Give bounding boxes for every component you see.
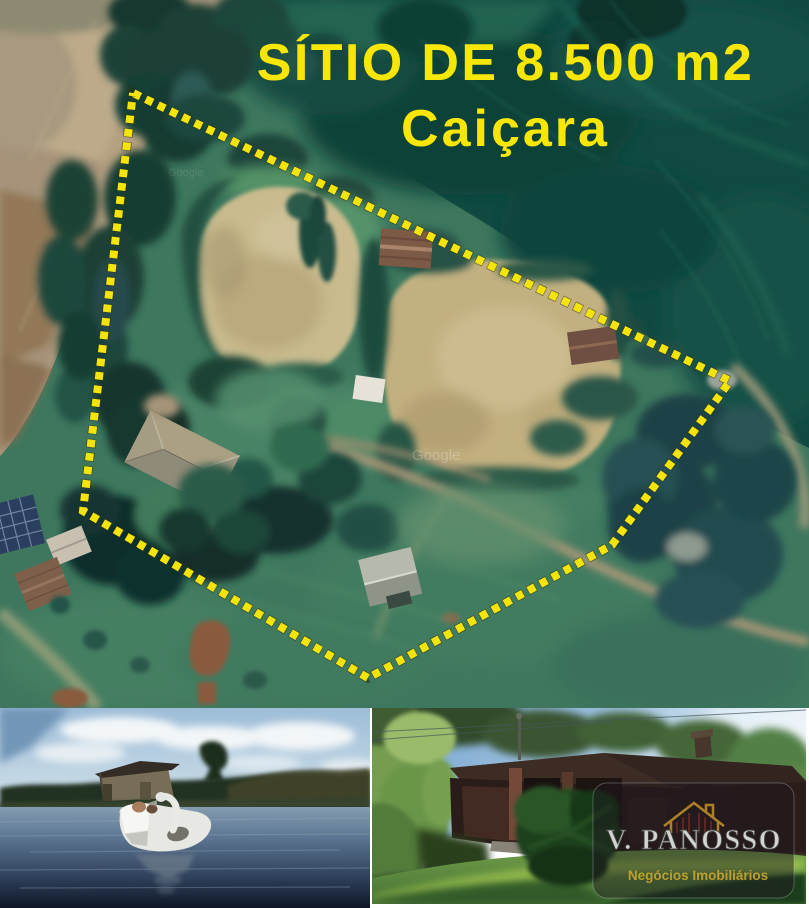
svg-text:Google: Google — [168, 167, 203, 179]
svg-text:Google: Google — [412, 447, 460, 464]
svg-text:Negócios Imobiliários: Negócios Imobiliários — [628, 868, 768, 883]
svg-text:V. PANOSSO: V. PANOSSO — [606, 825, 782, 856]
